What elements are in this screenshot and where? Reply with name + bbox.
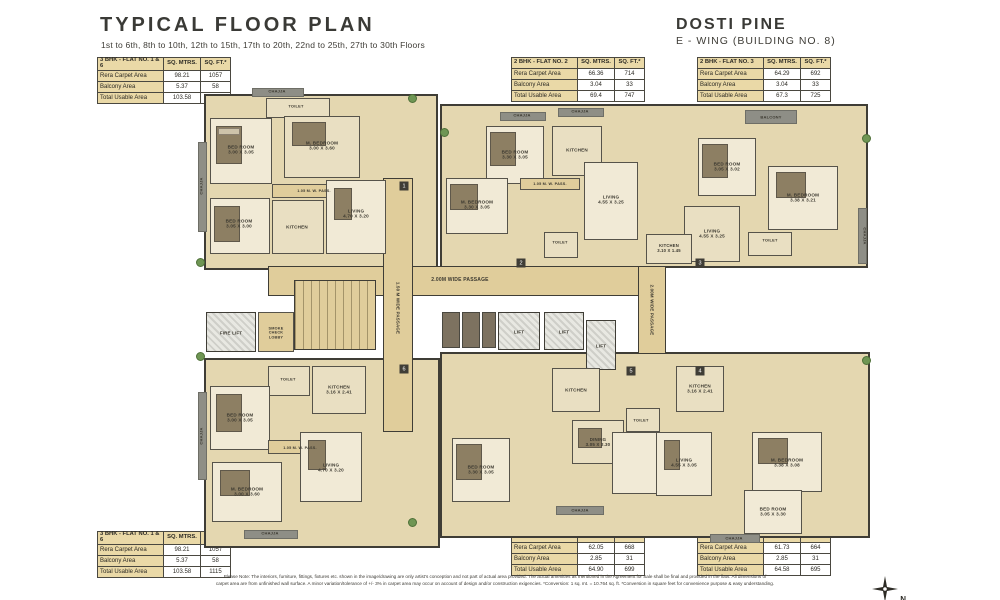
compass-icon: N	[872, 576, 906, 600]
compass-north-label: N	[900, 595, 906, 600]
floor-plan-sheet: TYPICAL FLOOR PLAN 1st to 6th, 8th to 10…	[0, 0, 1000, 600]
plan-label: CHAJJA	[200, 427, 205, 444]
plan-label: TOILET	[762, 239, 777, 244]
flat-number-badge: 2	[517, 259, 526, 268]
plant-icon	[196, 258, 205, 267]
plan-label: CHAJJA	[862, 227, 867, 244]
floor-plan-drawing: CHAJJATOILETBED ROOM 3.00 X 3.05M. BEDRO…	[0, 0, 1000, 600]
plan-label: KITCHEN	[566, 147, 588, 152]
plan-label: DINING 3.05 X 2.30	[586, 437, 611, 447]
plan-label: M. BEDROOM 3.00 X 3.60	[306, 141, 338, 152]
disclaimer-line-1: Please Note: The interiors, furniture, f…	[205, 574, 785, 581]
duct-cell	[442, 312, 460, 348]
plan-label: BED ROOM 3.00 X 3.05	[227, 413, 254, 424]
plan-label: TOILET	[633, 419, 648, 424]
flat-number-badge: 1	[400, 182, 409, 191]
plan-label: LIVING 4.55 X 3.25	[598, 195, 624, 206]
duct-cell	[482, 312, 496, 348]
plan-label: FIRE LIFT	[220, 330, 242, 335]
plan-label: LIVING 4.55 X 3.05	[671, 458, 697, 469]
plan-label: TOILET	[288, 105, 303, 110]
disclaimer-line-2: carpet area are from unfinished wall sur…	[205, 581, 785, 588]
plan-label: 2.00M WIDE PASSAGE	[431, 278, 488, 284]
plant-icon	[408, 518, 417, 527]
plan-label: LIFT	[514, 329, 525, 334]
plan-label: 2.00M WIDE PASSAGE	[649, 285, 654, 336]
flat-number-badge: 4	[696, 367, 705, 376]
plan-label: 1.05 M. W. PASS.	[283, 446, 317, 450]
plan-label: BALCONY	[760, 116, 781, 121]
plan-label: CHAJJA	[200, 177, 205, 194]
flat-number-badge: 5	[627, 367, 636, 376]
plant-icon	[408, 94, 417, 103]
plant-icon	[440, 128, 449, 137]
compass-star	[872, 576, 898, 600]
plan-label: M. BEDROOM 3.30 X 3.05	[461, 200, 493, 211]
plan-label: LIFT	[596, 343, 607, 348]
plan-label: KITCHEN	[286, 224, 308, 229]
plan-label: BED ROOM 3.30 X 3.05	[502, 150, 529, 161]
plan-label: CHAJJA	[268, 90, 285, 95]
plant-icon	[196, 352, 205, 361]
bed-pillow	[218, 128, 240, 135]
plan-label: BED ROOM 3.05 X 3.00	[226, 219, 253, 230]
plan-label: LIVING 4.70 X 3.20	[343, 209, 369, 220]
toilet-block	[748, 232, 792, 256]
plan-label: M. BEDROOM 3.38 X 3.21	[787, 193, 819, 204]
plan-label: CHAJJA	[725, 537, 742, 542]
plan-label: CHAJJA	[513, 114, 530, 119]
flat-number-badge: 6	[400, 365, 409, 374]
flat-number-badge: 3	[696, 259, 705, 268]
plan-label: TOILET	[552, 241, 567, 246]
plan-label: BED ROOM 3.30 X 3.05	[468, 465, 495, 476]
staircase	[294, 280, 376, 350]
disclaimer: Please Note: The interiors, furniture, f…	[205, 574, 785, 588]
plan-label: KITCHEN 3.16 X 2.41	[326, 385, 352, 396]
plan-label: CHAJJA	[571, 509, 588, 514]
plan-label: CHAJJA	[261, 532, 278, 537]
plan-label: 1.05 M. W. PASS.	[533, 182, 567, 186]
duct-cell	[462, 312, 480, 348]
plan-label: SMOKE CHECK LOBBY	[269, 326, 284, 339]
plan-label: LIVING 4.55 X 3.25	[699, 229, 725, 240]
plant-icon	[862, 356, 871, 365]
plant-icon	[862, 134, 871, 143]
plan-label: KITCHEN 3.10 X 1.45	[657, 244, 681, 254]
plan-label: CHAJJA	[571, 110, 588, 115]
plan-label: 1.05 M. W. PASS.	[297, 189, 331, 193]
plan-label: TOILET	[280, 378, 295, 383]
plan-label: BED ROOM 3.05 X 3.02	[714, 162, 741, 173]
plan-label: BED ROOM 3.00 X 3.05	[228, 145, 255, 156]
plan-label: LIFT	[559, 329, 570, 334]
plan-label: BED ROOM 3.05 X 3.30	[760, 507, 787, 518]
plan-label: M. BEDROOM 3.00 X 3.60	[231, 487, 263, 498]
plan-label: M. BEDROOM 3.38 X 3.08	[771, 458, 803, 469]
plan-label: 1.50 M WIDE PASSAGE	[395, 282, 400, 334]
plan-label: KITCHEN 3.16 X 2.41	[687, 384, 713, 395]
plan-label: KITCHEN	[565, 387, 587, 392]
plan-label: LIVING 4.70 X 3.20	[318, 463, 344, 474]
